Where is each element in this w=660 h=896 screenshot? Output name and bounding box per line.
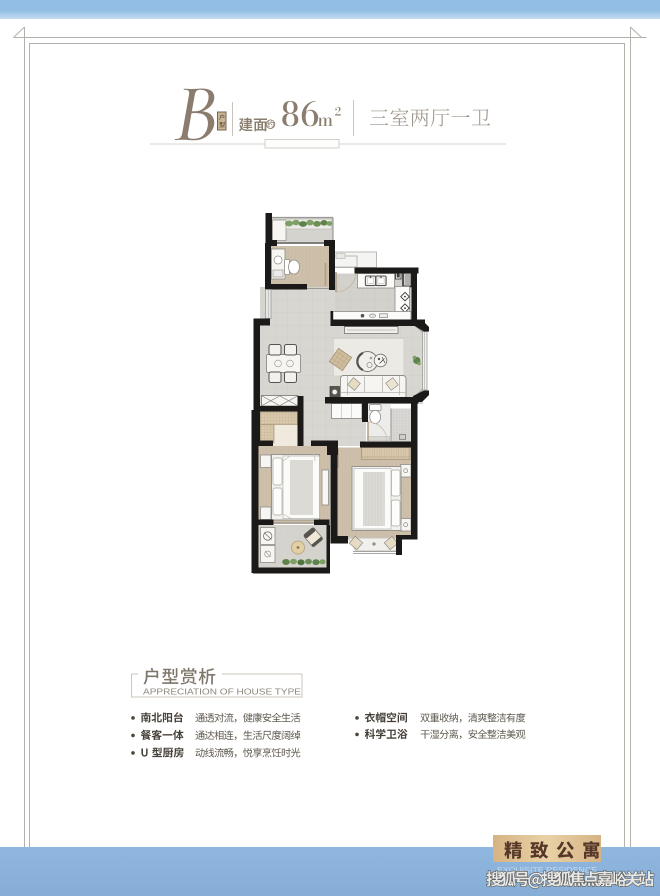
svg-text:APPRECIATION OF HOUSE TYPE: APPRECIATION OF HOUSE TYPE: [143, 688, 302, 697]
